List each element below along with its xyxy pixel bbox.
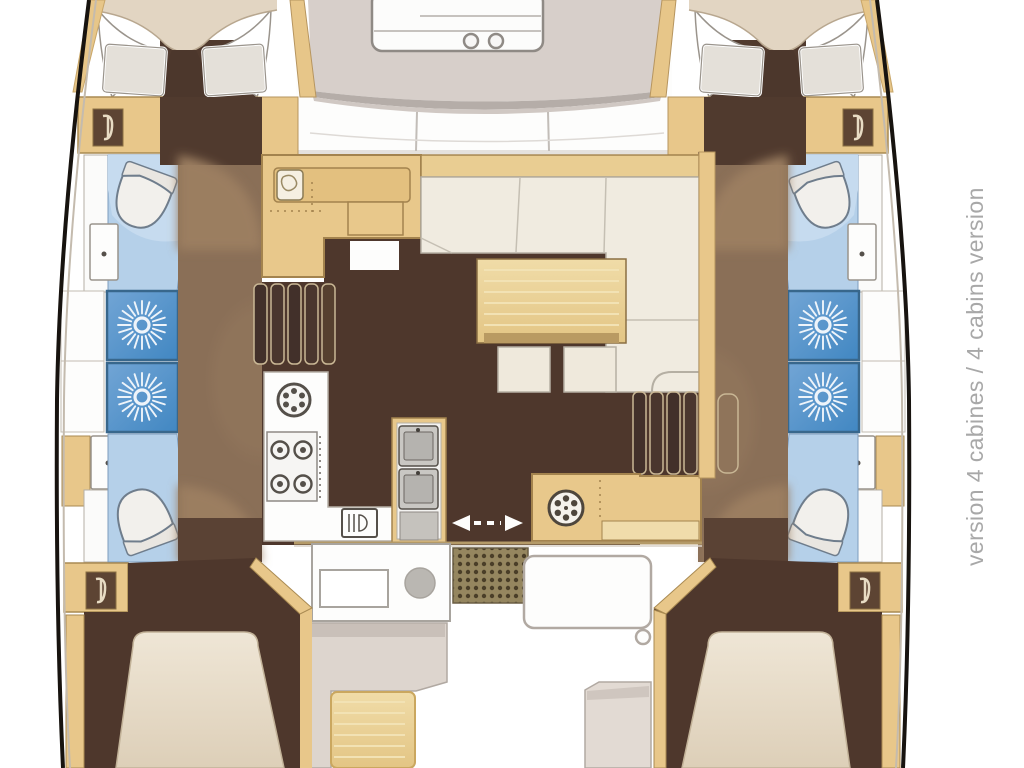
svg-text:version 4 cabines / 4 cabins v: version 4 cabines / 4 cabins version: [962, 187, 988, 566]
